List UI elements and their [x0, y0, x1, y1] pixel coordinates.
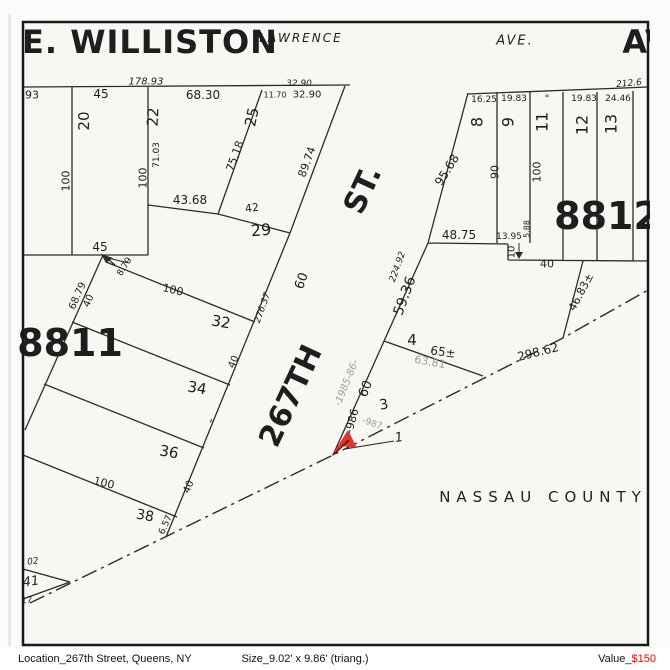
label-lot-8: 8	[468, 117, 487, 127]
label-block-8812: 8812	[554, 194, 660, 238]
label-dim-48-75: 48.75	[442, 228, 476, 242]
label-dim-5-88: 5.88	[523, 220, 532, 238]
label-dim-13-95: 13.95	[496, 232, 522, 242]
label-block-8811: 8811	[17, 321, 123, 365]
label-dim-178-93: 178.93	[129, 77, 164, 88]
caption-location: Location_267th Street, Queens, NY	[18, 653, 192, 665]
label-dim-16-25: 16.25	[471, 95, 497, 105]
value-amount: $150	[632, 653, 656, 665]
label-dim-32-90-italic: 32.90	[286, 79, 312, 89]
label-dim-93: 93	[25, 89, 39, 102]
label-ditto-lot11: "	[545, 94, 550, 105]
label-lot-29: 29	[250, 220, 272, 241]
label-dim-90: 90	[489, 165, 502, 179]
label-dim-100-e: 100	[531, 162, 544, 183]
label-lot-20: 20	[75, 111, 93, 130]
caption-value-label: Value_	[598, 653, 631, 665]
label-dim-71-03: 71.03	[152, 142, 162, 168]
scanned-map-page: E. WILLISTONLAWRENCEAVE.AVST.267TH881188…	[0, 0, 670, 670]
label-lot-9: 9	[499, 117, 518, 127]
label-lot-38: 38	[135, 507, 155, 526]
label-dim-40-d: 40	[540, 258, 554, 271]
label-dim-100-b: 100	[137, 168, 150, 189]
label-dim-19-83-a: 19.83	[501, 94, 527, 104]
label-lot-4: 4	[407, 331, 417, 349]
caption-bar: Location_267th Street, Queens, NY Size_9…	[0, 648, 670, 670]
label-dim-24-46: 24.46	[605, 94, 631, 104]
label-street-ave: AVE.	[495, 34, 534, 49]
label-dim-02: 02	[27, 556, 40, 568]
label-lot20-frontage-45: 45	[93, 87, 108, 101]
caption-value: Value_$150	[598, 653, 656, 665]
label-dim-100-a: 100	[60, 171, 73, 192]
label-street-lawrence: LAWRENCE	[259, 31, 342, 45]
plat-map: E. WILLISTONLAWRENCEAVE.AVST.267TH881188…	[0, 0, 670, 670]
label-dim-11-70: 11.70	[264, 91, 287, 100]
scan-margin-right	[650, 0, 670, 648]
label-lot20-rear-45: 45	[92, 240, 107, 254]
label-lot-41: 41	[22, 573, 40, 590]
label-lot-32: 32	[210, 311, 232, 332]
label-nassau-county: NASSAU COUNTY	[439, 488, 647, 506]
label-dim-42: 42	[244, 201, 260, 216]
label-lot-34: 34	[186, 377, 208, 398]
label-dim-10: 10	[507, 246, 518, 259]
label-dim-19-83-b: 19.83	[571, 94, 597, 104]
label-street-e-williston: E. WILLISTON	[22, 23, 278, 61]
label-dim-43-68: 43.68	[173, 193, 207, 207]
label-dim-68-30: 68.30	[186, 88, 220, 102]
label-lot-13: 13	[602, 114, 621, 134]
label-lot-36: 36	[158, 441, 180, 462]
label-lot-22: 22	[144, 107, 163, 127]
label-lot-11: 11	[533, 112, 552, 132]
label-dim-32-90: 32.90	[293, 90, 322, 101]
label-lot-12: 12	[573, 115, 592, 135]
